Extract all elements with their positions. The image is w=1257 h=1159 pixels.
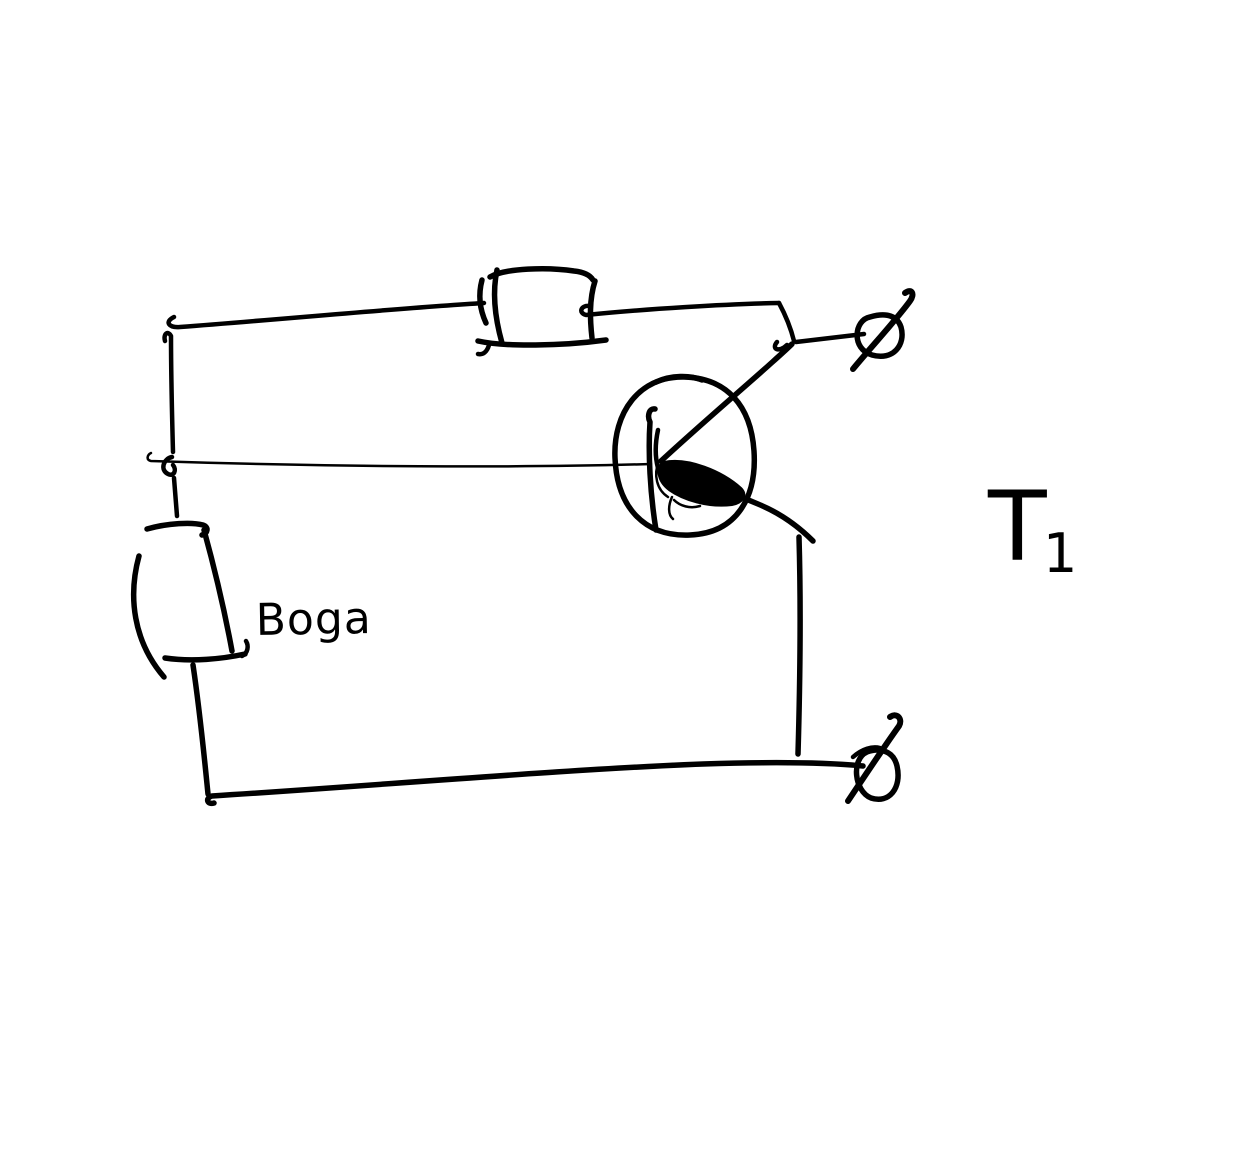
transistor-circle-overlap	[656, 376, 702, 382]
battery-top-edge	[147, 523, 207, 535]
battery-left-edge	[134, 556, 164, 677]
battery-lower-wire	[193, 665, 208, 794]
emitter-arrow-tail	[669, 497, 673, 519]
wire-resistor-to-corner	[581, 303, 779, 315]
transistor-label: T	[987, 471, 1047, 583]
transistor-circle	[615, 377, 754, 535]
resistor-left-edge	[495, 270, 502, 343]
left-vertical-wire	[165, 333, 173, 452]
resistor-top-edge	[490, 269, 593, 280]
transistor-collector-line	[661, 344, 792, 461]
circuit-sketch: Boga T 1	[0, 0, 1257, 1159]
top-wire	[169, 303, 484, 327]
base-wire	[148, 453, 651, 466]
battery-right-edge	[204, 530, 232, 651]
bottom-wire	[208, 763, 863, 804]
battery-bottom-tick	[242, 641, 248, 656]
drawing-canvas: Boga T 1	[0, 0, 1257, 1159]
wire-corner-to-terminal	[796, 334, 864, 342]
transistor-base-bar	[649, 409, 656, 530]
battery-label: Boga	[255, 593, 372, 646]
junction-tail	[174, 478, 177, 516]
corner-down-segment	[779, 303, 794, 341]
junction-knot	[163, 457, 174, 475]
battery-bottom-edge	[165, 654, 245, 660]
emitter-vertical-wire	[798, 537, 800, 754]
resistor-bottom-left-tick	[478, 345, 489, 354]
resistor-bottom-edge	[478, 340, 606, 345]
transistor-label-subscript: 1	[1043, 522, 1077, 585]
resistor-right-edge	[590, 281, 595, 338]
